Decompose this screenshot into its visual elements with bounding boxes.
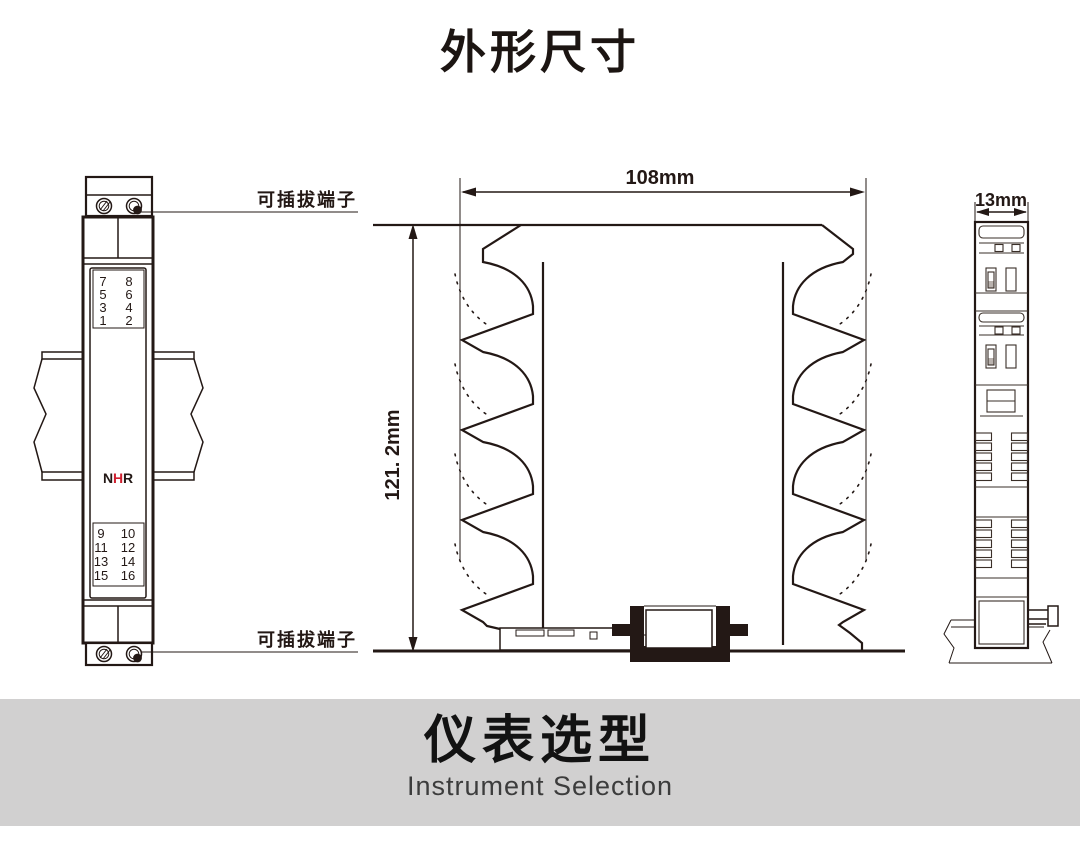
section-subtitle: Instrument Selection	[0, 771, 1080, 801]
end-view-drawing: 13mm	[944, 190, 1058, 663]
terminal-number: 1	[99, 313, 106, 328]
section-title: 仪表选型	[0, 711, 1080, 771]
module-body: 7 8 5 6 3 4 1 2 N H R 9	[83, 217, 153, 643]
logo-letter-n: N	[103, 470, 113, 486]
height-dimension: 121. 2mm	[382, 224, 418, 652]
terminal-number: 12	[121, 540, 135, 555]
din-clip	[612, 606, 748, 662]
side-view-drawing: 108mm 121. 2mm	[373, 167, 905, 662]
rail-latch	[1028, 606, 1058, 626]
page-title: 外形尺寸	[0, 16, 1080, 82]
nhr-logo: N H R	[103, 470, 133, 486]
width-dimension-label: 108mm	[626, 167, 695, 189]
terminal-number: 13	[94, 554, 108, 569]
front-view-drawing: 7 8 5 6 3 4 1 2 N H R 9	[34, 177, 358, 665]
depth-dimension: 13mm	[975, 190, 1028, 222]
top-terminal-block	[86, 177, 152, 216]
bottom-terminal-block	[86, 643, 152, 665]
logo-letter-h: H	[113, 470, 123, 486]
pluggable-terminal-label-bottom: 可插拔端子	[257, 629, 357, 650]
width-dimension: 108mm	[461, 167, 865, 197]
terminal-number: 10	[121, 526, 135, 541]
section-banner: 仪表选型 Instrument Selection	[0, 699, 1080, 826]
din-rail-left	[34, 352, 83, 480]
terminal-number: 14	[121, 554, 135, 569]
terminal-number: 2	[125, 313, 132, 328]
terminal-number: 9	[97, 526, 104, 541]
depth-dimension-label: 13mm	[975, 190, 1027, 210]
base-and-din-clip	[373, 606, 905, 662]
terminal-number: 15	[94, 568, 108, 583]
terminal-number: 11	[94, 540, 108, 555]
pluggable-terminal-callout-top: 可插拔端子	[141, 189, 358, 212]
logo-letter-r: R	[123, 470, 133, 486]
pluggable-terminal-callout-bottom: 可插拔端子	[141, 629, 358, 652]
datasheet-page: 外形尺寸	[0, 0, 1080, 843]
dimension-drawings: 7 8 5 6 3 4 1 2 N H R 9	[0, 140, 1080, 710]
height-dimension-label: 121. 2mm	[382, 409, 404, 500]
terminal-number: 16	[121, 568, 135, 583]
din-rail-right	[153, 352, 203, 480]
pluggable-terminal-label-top: 可插拔端子	[257, 189, 357, 210]
